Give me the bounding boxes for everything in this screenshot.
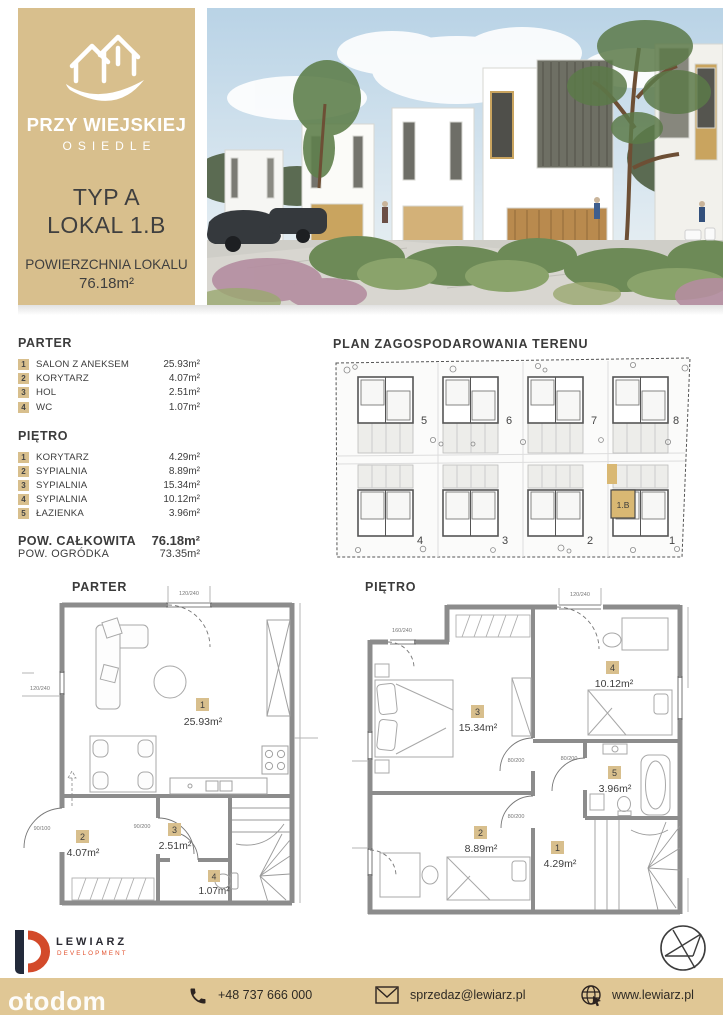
pietro-floorplan: 120/240 160/240 80/200 80/200 80/200 1 4… xyxy=(350,578,715,923)
schedule-totals: POW. CAŁKOWITA 76.18m² POW. OGRÓDKA 73.3… xyxy=(18,533,200,560)
footer-contact-bar: Biuro sprzedaży: plac Kościuszki 1 46-25… xyxy=(0,978,723,1015)
room-number-badge: 3 xyxy=(18,480,29,491)
room-number-badge: 5 xyxy=(18,508,29,519)
siteplan-title: PLAN ZAGOSPODAROWANIA TERENU xyxy=(333,337,588,351)
room-name: SYPIALNIA xyxy=(36,494,87,505)
unit-area-value: 76.18m² xyxy=(18,275,195,292)
phone-number[interactable]: +48 737 666 000 xyxy=(218,988,312,1002)
phone-icon xyxy=(188,986,208,1006)
room-area: 8.89m² xyxy=(169,466,200,477)
brand-name: PRZY WIEJSKIEJ xyxy=(18,114,195,136)
room-number-badge: 3 xyxy=(172,825,177,835)
unit-number: LOKAL 1.B xyxy=(18,212,195,239)
website-url[interactable]: www.lewiarz.pl xyxy=(612,988,694,1002)
room-area: 25.93m² xyxy=(163,359,200,370)
room-number-badge: 4 xyxy=(18,402,29,413)
room-number-badge: 1 xyxy=(555,843,560,853)
pietro-room-labels: 1 4.29m² 2 8.89m² 3 15.34m² 4 10.12m² 5 … xyxy=(459,661,634,870)
schedule-row: 4 SYPIALNIA 10.12m² xyxy=(18,494,200,505)
schedule-row: 4 WC 1.07m² xyxy=(18,402,200,413)
schedule-row: 2 SYPIALNIA 8.89m² xyxy=(18,466,200,477)
unit-type: TYP A xyxy=(18,184,195,211)
total-area-row: POW. CAŁKOWITA 76.18m² xyxy=(18,533,200,548)
brand-subtitle: OSIEDLE xyxy=(18,139,195,153)
schedule-row: 3 HOL 2.51m² xyxy=(18,387,200,398)
dim-label: 120/240 xyxy=(179,591,199,597)
lewiarz-logo-icon xyxy=(14,930,54,974)
room-area: 4.29m² xyxy=(169,452,200,463)
compass-icon xyxy=(657,922,709,974)
room-name: KORYTARZ xyxy=(36,373,89,384)
room-area-label: 4.29m² xyxy=(544,858,577,870)
room-number-badge: 5 xyxy=(612,768,617,778)
room-area-label: 4.07m² xyxy=(67,847,100,859)
room-number-badge: 1 xyxy=(200,700,205,710)
siteplan-unit-number: 2 xyxy=(587,535,593,547)
room-area: 4.07m² xyxy=(169,373,200,384)
room-name: WC xyxy=(36,402,52,413)
room-number-badge: 4 xyxy=(610,663,615,673)
dim-label: 120/240 xyxy=(570,592,590,598)
room-area: 2.51m² xyxy=(169,387,200,398)
room-name: KORYTARZ xyxy=(36,452,89,463)
highlight-unit-label: 1.B xyxy=(617,500,630,510)
email-address[interactable]: sprzedaz@lewiarz.pl xyxy=(410,988,526,1002)
garden-area-label: POW. OGRÓDKA xyxy=(18,548,109,560)
room-area-label: 8.89m² xyxy=(465,843,498,855)
room-number-badge: 1 xyxy=(18,452,29,463)
highlight-garden-strip xyxy=(607,464,617,484)
website-globe-icon xyxy=(580,984,604,1008)
garden-area-value: 73.35m² xyxy=(160,548,200,560)
siteplan-unit-number: 6 xyxy=(506,415,512,427)
dim-label: 80/200 xyxy=(508,758,525,764)
schedule-row: 1 KORYTARZ 4.29m² xyxy=(18,452,200,463)
room-area-label: 10.12m² xyxy=(595,678,634,690)
schedule-row: 3 SYPIALNIA 15.34m² xyxy=(18,480,200,491)
estate-logo-icon xyxy=(56,24,156,110)
schedule-row: 5 ŁAZIENKA 3.96m² xyxy=(18,508,200,519)
total-area-value: 76.18m² xyxy=(152,533,200,548)
dim-label: 120/240 xyxy=(30,686,50,692)
dim-label: 80/200 xyxy=(508,814,525,820)
siteplan-unit-number: 3 xyxy=(502,535,508,547)
room-area: 1.07m² xyxy=(169,402,200,413)
room-number-badge: 3 xyxy=(475,707,480,717)
room-area: 10.12m² xyxy=(163,494,200,505)
lewiarz-brand-sub: DEVELOPMENT xyxy=(57,950,128,957)
garden-area-row: POW. OGRÓDKA 73.35m² xyxy=(18,548,200,560)
total-area-label: POW. CAŁKOWITA xyxy=(18,534,136,548)
parter-floorplan: 120/240 120/240 90/100 90/200 1 25.93m² … xyxy=(20,578,320,918)
email-icon xyxy=(375,986,399,1004)
photo-shadow xyxy=(18,305,723,315)
siteplan-unit-number: 5 xyxy=(421,415,427,427)
room-number-badge: 4 xyxy=(18,494,29,505)
room-name: SYPIALNIA xyxy=(36,480,87,491)
dim-label: 160/240 xyxy=(392,628,412,634)
room-number-badge: 2 xyxy=(80,832,85,842)
brand-panel: PRZY WIEJSKIEJ OSIEDLE TYP A LOKAL 1.B P… xyxy=(18,8,195,305)
room-area: 15.34m² xyxy=(163,480,200,491)
room-name: HOL xyxy=(36,387,56,398)
room-area: 3.96m² xyxy=(169,508,200,519)
schedule-pietro-title: PIĘTRO xyxy=(18,429,200,443)
siteplan-drawing: 1.B 5 6 7 8 4 3 2 1 xyxy=(333,352,718,567)
lewiarz-brand-name: LEWIARZ xyxy=(56,936,127,948)
siteplan-unit-number: 7 xyxy=(591,415,597,427)
brochure-page: PRZY WIEJSKIEJ OSIEDLE TYP A LOKAL 1.B P… xyxy=(0,0,723,1023)
room-number-badge: 2 xyxy=(18,373,29,384)
dim-label: 90/100 xyxy=(34,826,51,832)
room-area-label: 25.93m² xyxy=(184,716,223,728)
room-number-badge: 2 xyxy=(18,466,29,477)
siteplan-unit-number: 1 xyxy=(669,535,675,547)
schedule-parter-title: PARTER xyxy=(18,336,200,350)
hero-photo xyxy=(207,8,723,305)
dim-label: 80/200 xyxy=(561,756,578,762)
dim-label: 90/200 xyxy=(134,824,151,830)
room-area-label: 3.96m² xyxy=(599,783,632,795)
room-name: ŁAZIENKA xyxy=(36,508,84,519)
room-schedule: PARTER 1 SALON Z ANEKSEM 25.93m² 2 KORYT… xyxy=(18,336,200,560)
siteplan-unit-number: 4 xyxy=(417,535,423,547)
room-area-label: 15.34m² xyxy=(459,722,498,734)
room-name: SALON Z ANEKSEM xyxy=(36,359,129,370)
room-area-label: 1.07m² xyxy=(198,886,230,897)
schedule-row: 1 SALON Z ANEKSEM 25.93m² xyxy=(18,359,200,370)
otodom-watermark: otodom xyxy=(8,986,106,1017)
room-number-badge: 2 xyxy=(478,828,483,838)
room-area-label: 2.51m² xyxy=(159,840,192,852)
schedule-row: 2 KORYTARZ 4.07m² xyxy=(18,373,200,384)
unit-area-label: POWIERZCHNIA LOKALU xyxy=(18,257,195,272)
room-name: SYPIALNIA xyxy=(36,466,87,477)
room-number-badge: 4 xyxy=(212,872,217,882)
room-number-badge: 1 xyxy=(18,359,29,370)
room-number-badge: 3 xyxy=(18,387,29,398)
siteplan-unit-number: 8 xyxy=(673,415,679,427)
